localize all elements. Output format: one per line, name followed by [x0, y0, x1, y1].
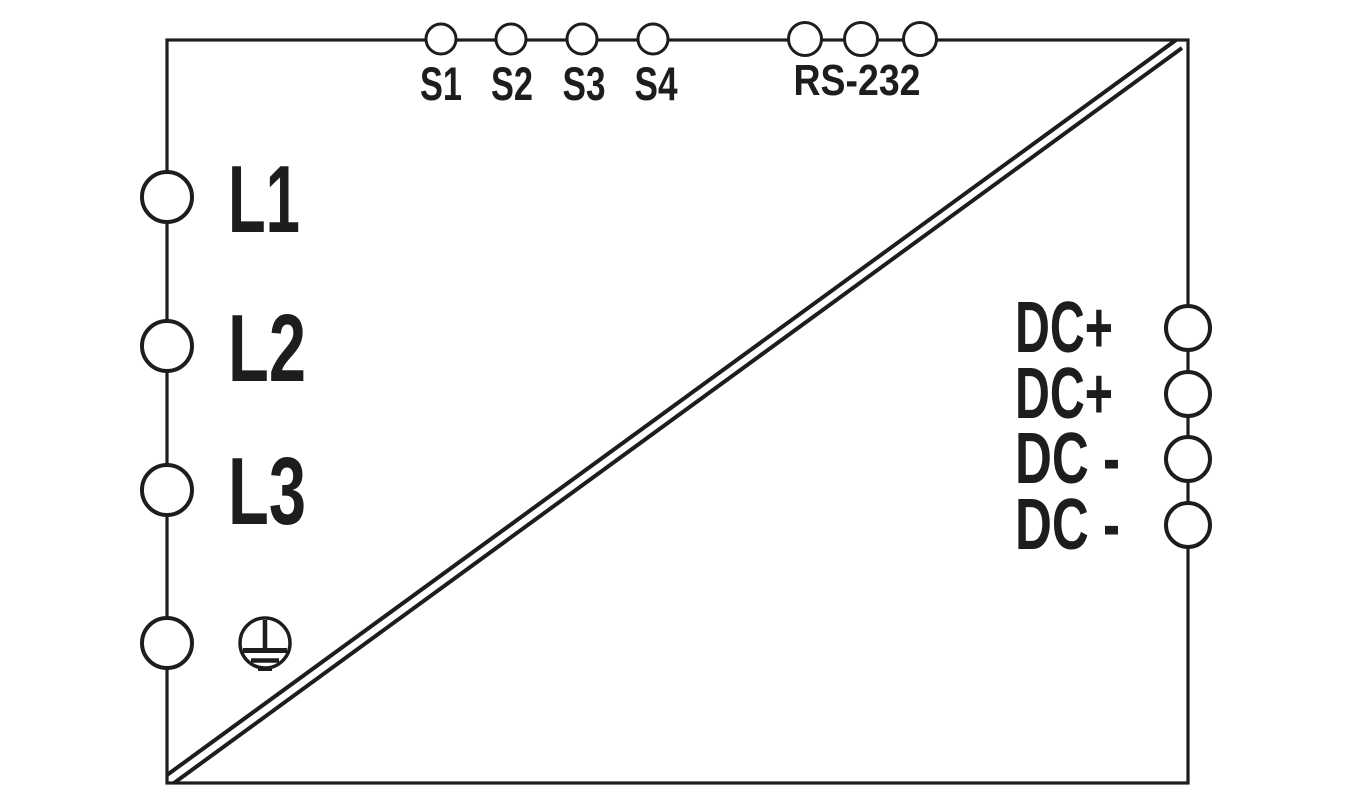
label-l2: L2: [228, 295, 306, 402]
terminal-labels: S1 S2 S3 S4 RS-232 L1 L2 L3 DC+ DC+ DC -…: [228, 56, 1120, 565]
terminal-s2-circle: [496, 24, 526, 54]
terminal-l2-circle: [142, 321, 192, 371]
terminal-l1-circle: [142, 172, 192, 222]
terminal-dc-minus-2-circle: [1166, 503, 1210, 547]
power-supply-wiring-diagram: S1 S2 S3 S4 RS-232 L1 L2 L3 DC+ DC+ DC -…: [0, 0, 1361, 807]
diagram-stage: S1 S2 S3 S4 RS-232 L1 L2 L3 DC+ DC+ DC -…: [0, 0, 1361, 807]
terminal-l3-circle: [142, 465, 192, 515]
terminal-dc-plus-1-circle: [1166, 306, 1210, 350]
terminal-rs232-circle-2: [845, 23, 878, 56]
label-s2: S2: [491, 57, 533, 110]
label-s4: S4: [635, 57, 678, 110]
label-s3: S3: [563, 57, 606, 110]
terminal-s1-circle: [426, 24, 456, 54]
label-l3: L3: [228, 438, 306, 545]
label-l1: L1: [228, 146, 300, 253]
protective-earth-icon: [240, 618, 290, 669]
terminal-rs232-circle-3: [904, 23, 937, 56]
label-s1: S1: [420, 57, 462, 110]
label-rs232: RS-232: [794, 56, 921, 105]
terminal-s4-circle: [638, 24, 668, 54]
terminal-pe-circle: [142, 618, 192, 668]
terminal-s3-circle: [567, 24, 597, 54]
label-dc-minus-2: DC -: [1015, 485, 1120, 565]
rs232-terminals: [789, 23, 937, 56]
terminal-rs232-circle-1: [789, 23, 822, 56]
terminal-dc-plus-2-circle: [1166, 372, 1210, 416]
terminal-dc-minus-1-circle: [1166, 437, 1210, 481]
